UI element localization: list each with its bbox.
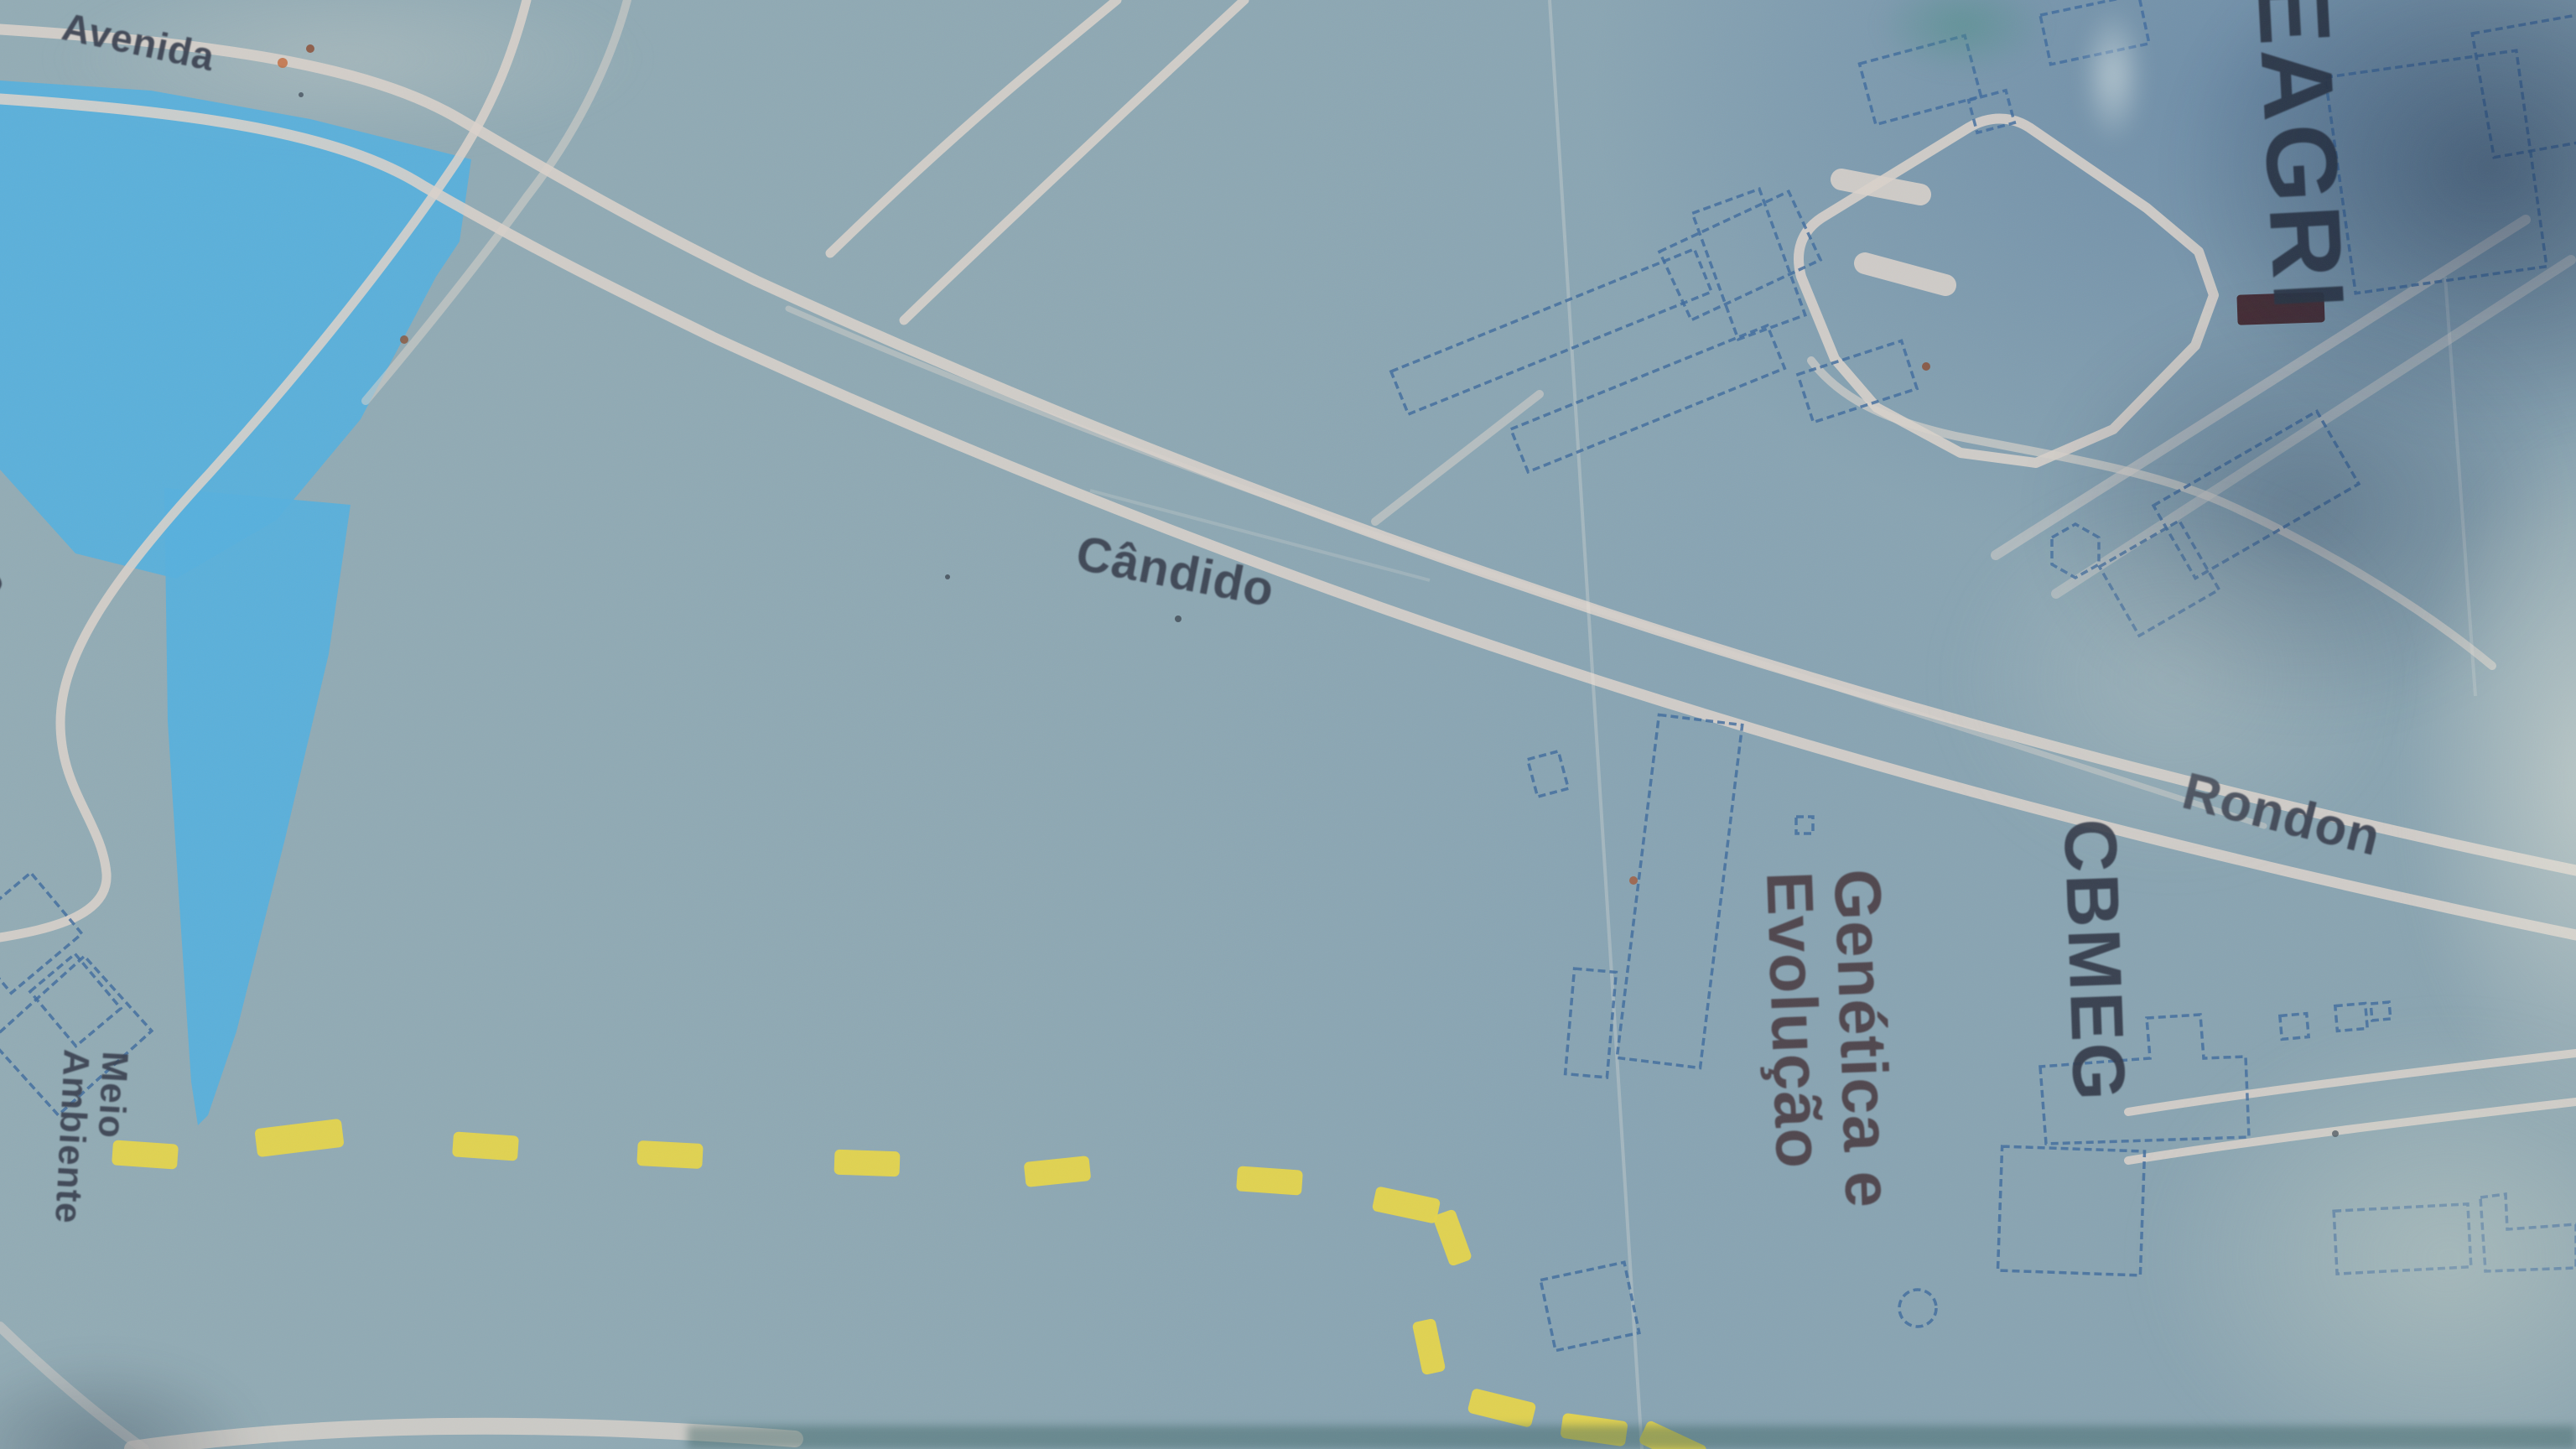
photo-grain [0, 0, 2576, 1449]
grain-rect [0, 0, 2576, 1449]
map-photo: AvenidaCândidoRondonEAGRICBMEGGenética e… [0, 0, 2576, 1449]
